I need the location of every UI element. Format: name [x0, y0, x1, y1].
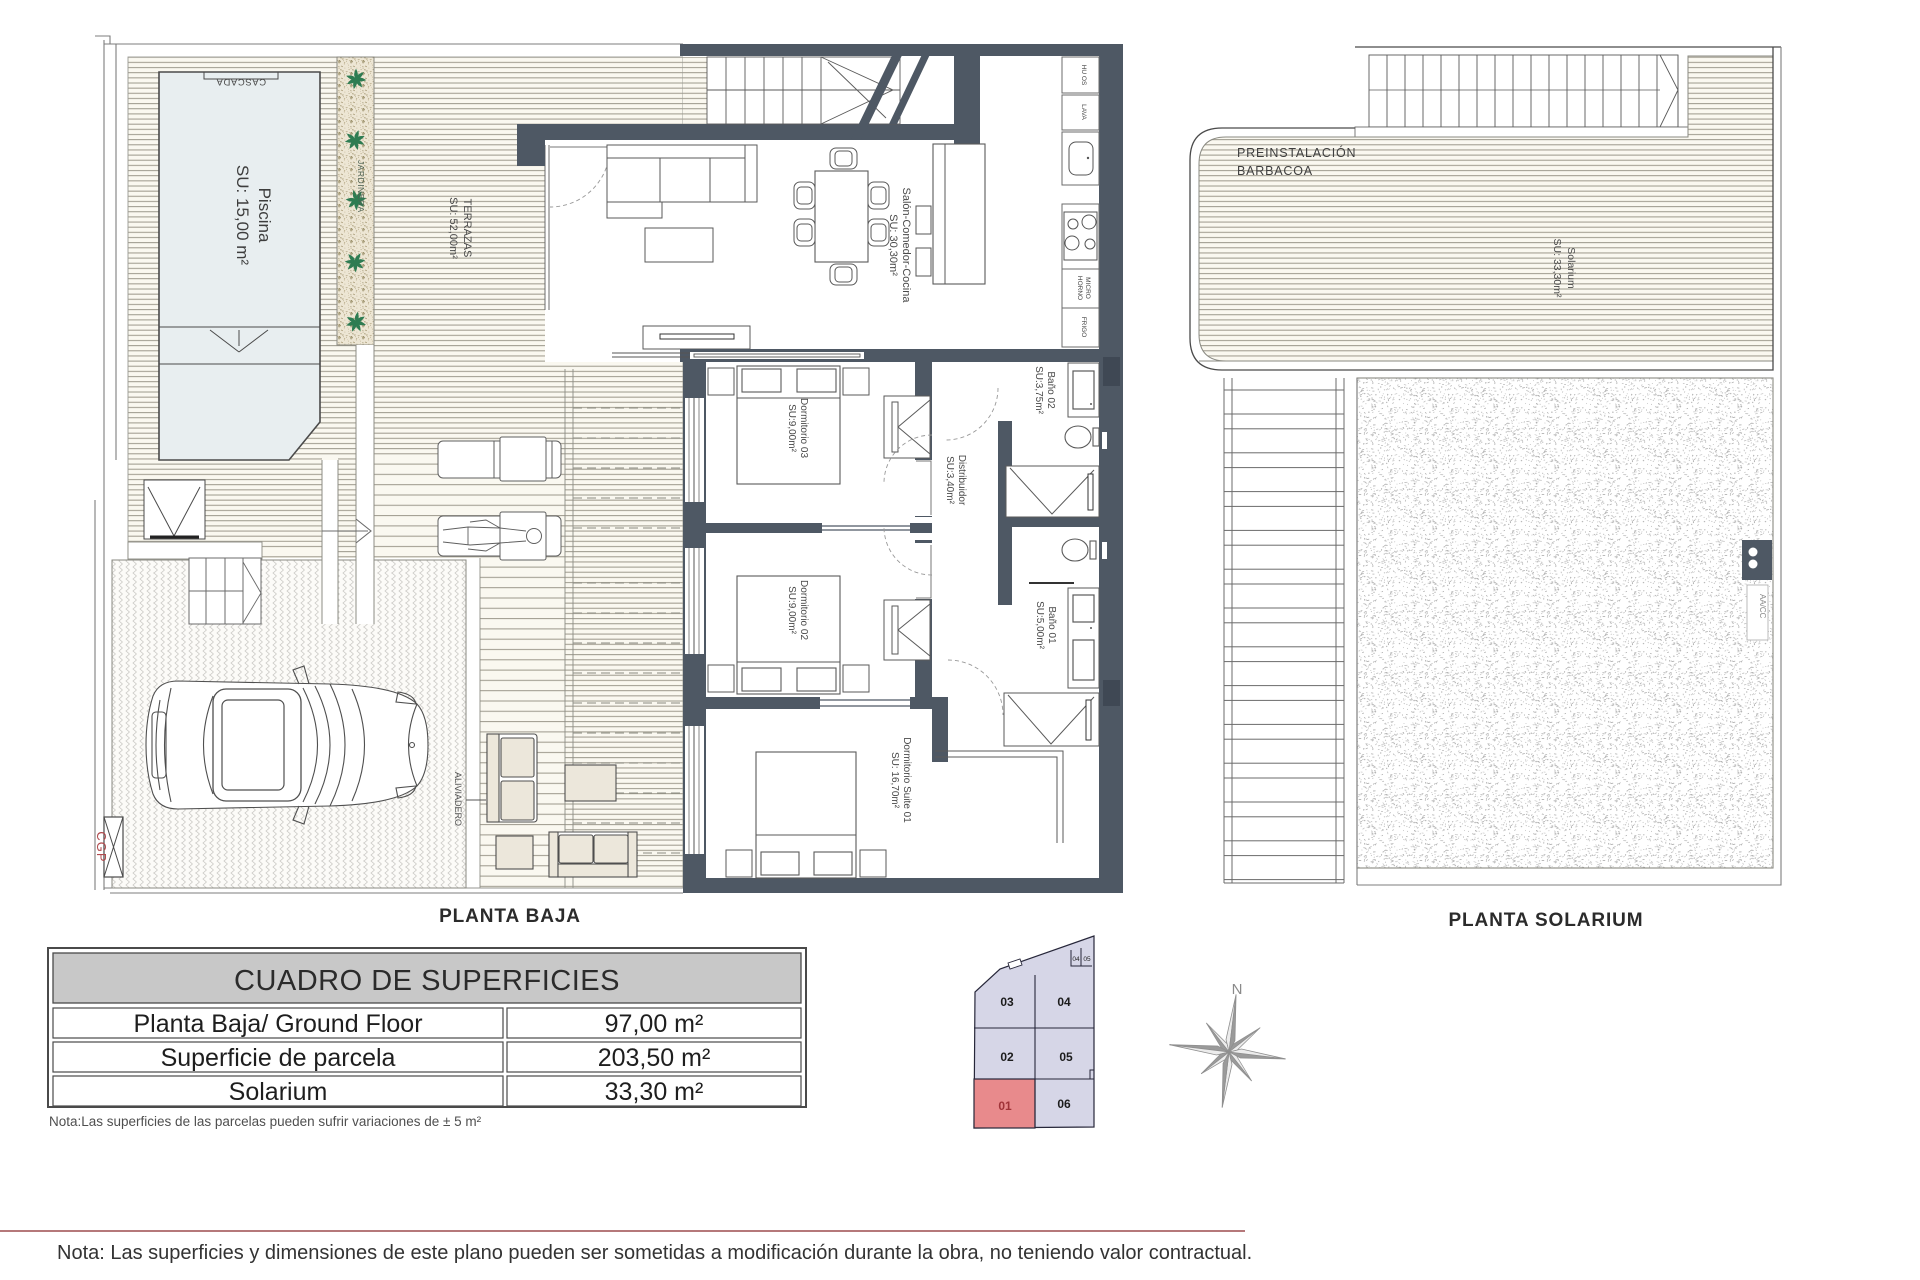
svg-text:SU:9,00m²: SU:9,00m² — [786, 404, 797, 452]
svg-text:ALIVIADERO: ALIVIADERO — [453, 772, 463, 826]
svg-text:Dormitorio 02: Dormitorio 02 — [798, 580, 809, 640]
svg-text:Salón-Comedor-Cocina: Salón-Comedor-Cocina — [900, 188, 912, 304]
svg-text:MICRO: MICRO — [1084, 277, 1091, 299]
svg-text:05: 05 — [1059, 1050, 1073, 1064]
svg-text:Dormitorio 03: Dormitorio 03 — [798, 398, 809, 458]
svg-text:01: 01 — [998, 1099, 1012, 1113]
svg-text:33,30 m²: 33,30 m² — [605, 1078, 704, 1106]
svg-text:Nota:Las superficies de las pa: Nota:Las superficies de las parcelas pue… — [49, 1114, 482, 1129]
svg-text:Planta Baja/ Ground Floor: Planta Baja/ Ground Floor — [133, 1010, 422, 1038]
svg-text:JARDINERA: JARDINERA — [356, 160, 366, 213]
svg-text:SU: 16,70m²: SU: 16,70m² — [889, 752, 900, 809]
svg-text:Nota: Las superficies y dimens: Nota: Las superficies y dimensiones de e… — [57, 1242, 1252, 1264]
svg-text:AA/CC: AA/CC — [1758, 594, 1767, 619]
svg-text:CGP: CGP — [94, 831, 109, 862]
svg-text:06: 06 — [1057, 1097, 1071, 1111]
svg-text:97,00 m²: 97,00 m² — [605, 1010, 704, 1038]
svg-text:PLANTA BAJA: PLANTA BAJA — [439, 906, 581, 927]
svg-text:BARBACOA: BARBACOA — [1237, 164, 1313, 178]
svg-text:SU: 52,00m²: SU: 52,00m² — [447, 197, 459, 259]
svg-text:02: 02 — [1000, 1050, 1014, 1064]
svg-text:PLANTA SOLARIUM: PLANTA SOLARIUM — [1448, 910, 1643, 931]
svg-text:SU:3,40m²: SU:3,40m² — [944, 456, 955, 504]
svg-text:04: 04 — [1057, 995, 1071, 1009]
svg-text:SU:3,75m²: SU:3,75m² — [1033, 366, 1044, 414]
svg-text:SU: 33,30m²: SU: 33,30m² — [1551, 239, 1563, 298]
svg-text:LAVA: LAVA — [1080, 104, 1087, 120]
svg-text:PREINSTALACIÓN: PREINSTALACIÓN — [1237, 145, 1356, 160]
svg-text:03: 03 — [1000, 995, 1014, 1009]
svg-text:Solarium: Solarium — [1565, 247, 1577, 289]
svg-text:Baño 01: Baño 01 — [1046, 606, 1057, 644]
svg-text:SU:5,00m²: SU:5,00m² — [1034, 601, 1045, 649]
svg-text:Superficie de parcela: Superficie de parcela — [161, 1044, 396, 1072]
svg-text:SU: 15,00 m²: SU: 15,00 m² — [233, 165, 252, 265]
svg-text:CUADRO DE SUPERFICIES: CUADRO DE SUPERFICIES — [234, 965, 620, 997]
svg-text:Piscina: Piscina — [255, 188, 274, 243]
svg-text:SU: 30,30m²: SU: 30,30m² — [887, 214, 899, 276]
svg-text:Baño 02: Baño 02 — [1045, 371, 1056, 409]
svg-text:TERRAZAS: TERRAZAS — [461, 199, 473, 258]
svg-text:HORNO: HORNO — [1076, 276, 1083, 300]
svg-text:SU:9,00m²: SU:9,00m² — [786, 586, 797, 634]
svg-text:FRIGO: FRIGO — [1080, 317, 1087, 338]
svg-text:CASCADA: CASCADA — [216, 76, 266, 87]
svg-text:Distribuidor: Distribuidor — [956, 455, 967, 506]
svg-text:Dormitorio Suite 01: Dormitorio Suite 01 — [901, 737, 912, 823]
svg-text:N: N — [1232, 981, 1243, 998]
svg-text:203,50 m²: 203,50 m² — [598, 1044, 711, 1072]
svg-text:04: 04 — [1072, 956, 1080, 963]
svg-text:HU OS: HU OS — [1080, 65, 1087, 86]
svg-text:Solarium: Solarium — [229, 1078, 328, 1106]
svg-text:05: 05 — [1083, 956, 1091, 963]
